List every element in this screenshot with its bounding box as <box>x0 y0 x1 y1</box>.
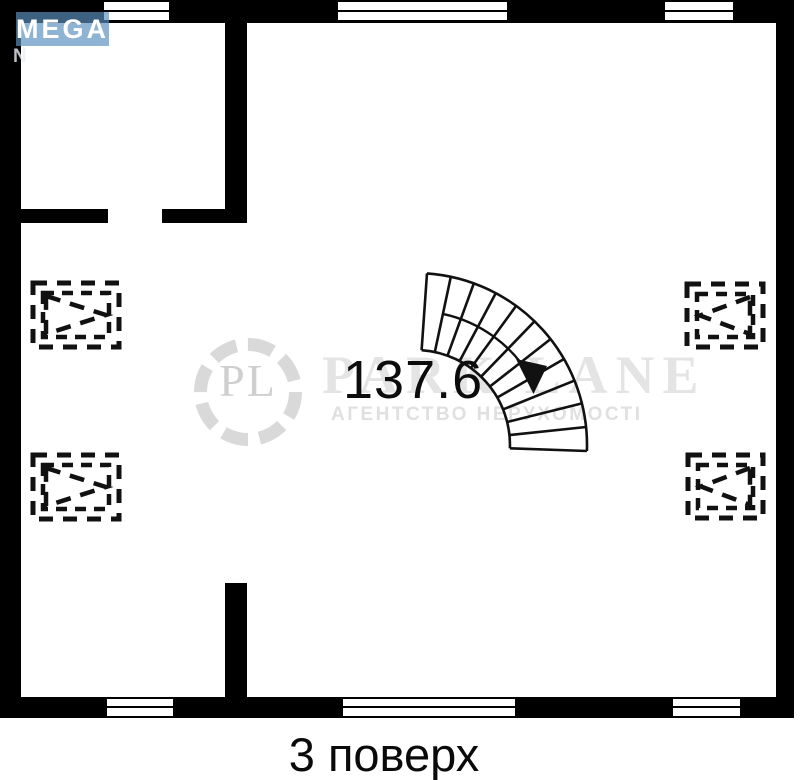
mega-logo-text: MEGA <box>16 16 109 43</box>
vent-shaft-bottom-right <box>688 455 763 518</box>
stair-direction-arrow-icon <box>516 359 547 394</box>
floorplan-image: PL PARK LANE АГЕНТСТВО НЕРУХОМОСТІ <box>0 0 800 780</box>
mega-logo-second-line: N <box>13 46 27 68</box>
vent-shaft-top-right <box>687 284 763 347</box>
area-value-label: 137.6 <box>343 349 483 411</box>
vent-shaft-bottom-left <box>33 455 119 519</box>
vent-shaft-top-left <box>33 283 119 347</box>
floor-caption: 3 поверх <box>0 727 768 780</box>
mega-logo: MEGA <box>16 12 109 46</box>
